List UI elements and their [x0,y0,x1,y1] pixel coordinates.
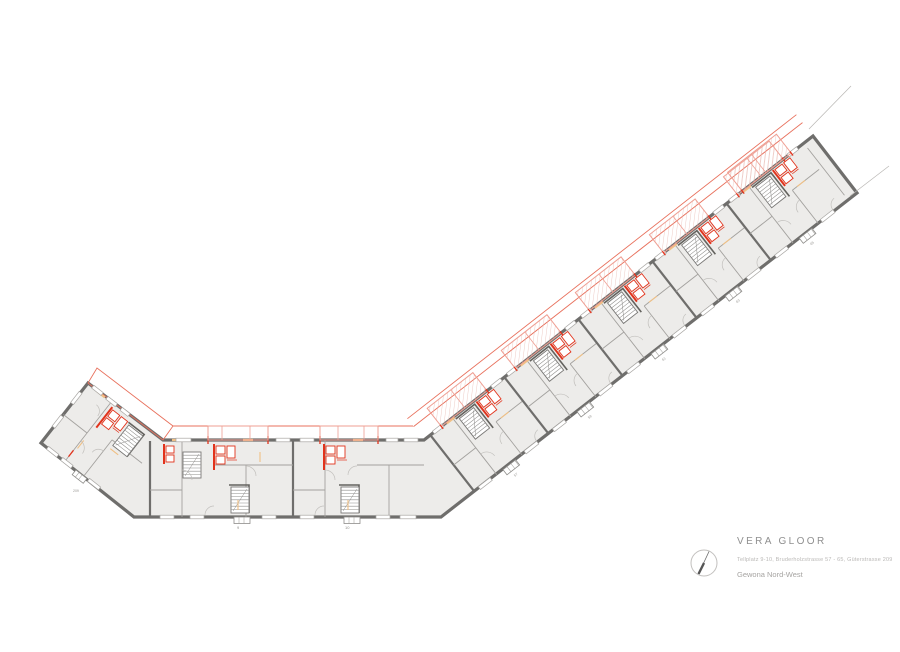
balcony [320,426,378,440]
entrance-number: 61 [661,356,667,362]
drawing-sheet: 209 [0,0,900,652]
project-address: Tellplatz 9-10, Bruderholzstrasse 57 - 6… [737,557,897,563]
entrance-number: 63 [735,298,741,304]
entrance-number: 209 [73,489,79,493]
north-arrow-icon [689,548,719,580]
entrance-number: 10 [345,525,350,530]
entrance-number: 65 [809,241,815,247]
entrance-number: 57 [513,472,519,478]
stair-core [183,452,201,478]
entrance-number: 9 [237,525,240,530]
entrance-number: 59 [587,414,593,420]
title-block: VERA GLOOR Tellplatz 9-10, Bruderholzstr… [737,536,897,579]
stair-core [341,487,359,513]
boundary-extension-line [850,166,889,196]
balcony [208,426,268,440]
architect-name: VERA GLOOR [737,536,897,547]
boundary-extension-line [809,86,851,129]
project-name: Gewona Nord-West [737,570,897,579]
stair-core [231,487,249,513]
